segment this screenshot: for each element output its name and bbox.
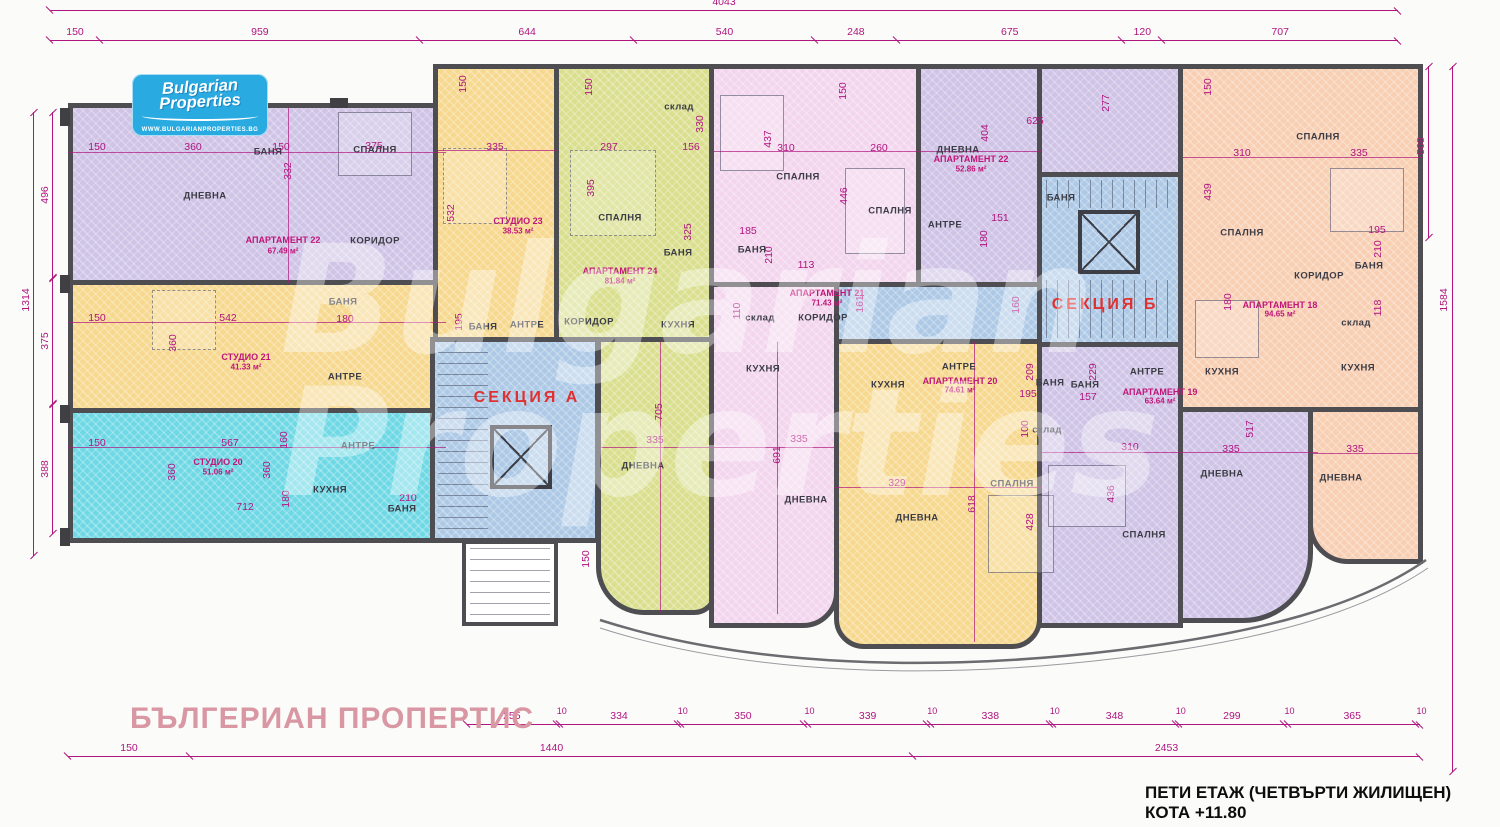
dim-segment: 540 bbox=[634, 24, 814, 41]
apartment-area: 41.33 м² bbox=[231, 363, 262, 372]
apartment-area: 67.49 м² bbox=[268, 247, 299, 256]
dim-label: 150 bbox=[68, 742, 190, 754]
dim-segment: 644 bbox=[420, 24, 635, 41]
room-label-dnevna: ДНЕВНА bbox=[622, 461, 665, 472]
dim-label: 150 bbox=[88, 312, 106, 324]
room-label-kuhnya: КУХНЯ bbox=[746, 364, 780, 375]
room-label-spalnya: СПАЛНЯ bbox=[1122, 530, 1165, 541]
elevator-shaft-a bbox=[490, 425, 552, 489]
room-label-spalnya: СПАЛНЯ bbox=[1296, 132, 1339, 143]
room-label-banya: БАНЯ bbox=[1355, 261, 1384, 272]
dim-label: 297 bbox=[600, 141, 618, 153]
dim-segment: 339 bbox=[808, 708, 927, 725]
bed bbox=[720, 95, 784, 171]
bed bbox=[988, 495, 1054, 573]
dim-label: 160 bbox=[278, 431, 290, 449]
room-label-kuhnya: КУХНЯ bbox=[871, 380, 905, 391]
dim-label: 100 bbox=[1019, 420, 1031, 438]
dim-label: 388 bbox=[39, 460, 51, 478]
dim-segment: 365 bbox=[1288, 708, 1416, 725]
apartment-area: 63.64 м² bbox=[1145, 397, 1176, 406]
room-label-koridor: КОРИДОР bbox=[1294, 271, 1344, 282]
dim-label: 625 bbox=[1026, 115, 1044, 127]
dim-line-left-496 bbox=[52, 112, 53, 278]
dim-label: 375 bbox=[39, 332, 51, 350]
dim-label: 160 bbox=[1010, 296, 1022, 314]
dim-label: 335 bbox=[486, 141, 504, 153]
room-label-dnevna: ДНЕВНА bbox=[1320, 473, 1363, 484]
apartment-area: 71.43 м² bbox=[812, 299, 843, 308]
dim-segment: 348 bbox=[1053, 708, 1175, 725]
dim-label: 335 bbox=[646, 434, 664, 446]
dim-segment: 334 bbox=[560, 708, 678, 725]
title-block: ПЕТИ ЕТАЖ (ЧЕТВЪРТИ ЖИЛИЩЕН) КОТА +11.80 bbox=[1145, 783, 1451, 823]
dim-label: 329 bbox=[888, 477, 906, 489]
dim-label: 334 bbox=[560, 710, 678, 722]
dim-label: 360 bbox=[167, 334, 179, 352]
dim-label: 248 bbox=[815, 26, 898, 38]
dim-segment: 959 bbox=[100, 24, 420, 41]
dim-label: 260 bbox=[870, 142, 888, 154]
dim-label: 1440 bbox=[190, 742, 913, 754]
dim-label: 118 bbox=[1372, 300, 1384, 317]
dim-label: 150 bbox=[272, 141, 290, 153]
dim-label: 310 bbox=[1233, 147, 1251, 159]
apartment-area: 51.06 м² bbox=[203, 468, 234, 477]
dim-label: 150 bbox=[457, 75, 469, 93]
dim-label: 277 bbox=[1100, 94, 1112, 112]
apartment-label: АПАРТАМЕНТ 19 bbox=[1123, 387, 1198, 397]
dimension-line bbox=[660, 342, 661, 612]
apartment-area: 52.86 м² bbox=[956, 165, 987, 174]
dim-label: 113 bbox=[798, 259, 815, 271]
logo-website: WWW.BULGARIANPROPERTIES.BG bbox=[132, 127, 268, 133]
dim-label: 210 bbox=[763, 246, 775, 264]
dimension-line bbox=[288, 108, 289, 283]
room-label-kuhnya: КУХНЯ bbox=[1205, 367, 1239, 378]
room-studio-21 bbox=[68, 280, 446, 413]
dim-label: 330 bbox=[694, 115, 706, 133]
room-label-banya: БАНЯ bbox=[329, 297, 358, 308]
elevator-shaft-b bbox=[1078, 210, 1140, 274]
floor-plan-page: { "logo": {"brand_line1":"Bulgarian","br… bbox=[0, 0, 1500, 827]
dim-label: 2453 bbox=[913, 742, 1420, 754]
room-label-banya: БАНЯ bbox=[469, 322, 498, 333]
dim-chain-bottom: 255 10 334 10 350 10 339 10 338 10 348 1… bbox=[467, 708, 1420, 725]
dim-label: 195 bbox=[1368, 224, 1386, 236]
room-label-kuhnya: КУХНЯ bbox=[1341, 363, 1375, 374]
dimension-line bbox=[68, 447, 446, 448]
dim-label: 299 bbox=[1179, 710, 1284, 722]
apartment-label: АПАРТАМЕНТ 18 bbox=[1243, 300, 1318, 310]
dim-line-right-508 bbox=[1428, 66, 1429, 238]
bed bbox=[152, 290, 216, 350]
dim-label: 365 bbox=[1288, 710, 1416, 722]
dim-label: 210 bbox=[1372, 240, 1384, 258]
room-label-dnevna: ДНЕВНА bbox=[785, 495, 828, 506]
apartment-label: СТУДИО 20 bbox=[193, 457, 242, 467]
dim-label: 446 bbox=[838, 187, 850, 205]
dim-label: 150 bbox=[583, 78, 595, 96]
dim-label: 395 bbox=[585, 179, 597, 197]
dim-segment: 150 bbox=[68, 740, 190, 757]
apartment-area: 74.61 м² bbox=[945, 386, 976, 395]
dim-segment: 120 bbox=[1122, 24, 1162, 41]
room-label-antre: АНТРЕ bbox=[328, 372, 362, 383]
dim-label: 157 bbox=[1079, 391, 1097, 403]
room-label-spalnya: СПАЛНЯ bbox=[776, 172, 819, 183]
dim-label: 618 bbox=[966, 495, 978, 513]
room-label-sklad: склад bbox=[664, 102, 694, 113]
elevation-title: КОТА +11.80 bbox=[1145, 803, 1451, 823]
room-label-spalnya: СПАЛНЯ bbox=[868, 206, 911, 217]
dim-label: 350 bbox=[681, 710, 804, 722]
dim-segment: 248 bbox=[815, 24, 898, 41]
apartment-area: 94.65 м² bbox=[1265, 310, 1296, 319]
room-label-antre: АНТРЕ bbox=[1130, 367, 1164, 378]
dim-segment: 2453 bbox=[913, 740, 1420, 757]
dimension-line bbox=[777, 342, 778, 614]
room-label-banya: БАНЯ bbox=[1036, 378, 1065, 389]
dim-label: 532 bbox=[445, 204, 457, 222]
dim-line-left-375 bbox=[52, 278, 53, 404]
wall-pillar bbox=[60, 528, 70, 546]
section-b-label: СЕКЦИЯ Б bbox=[1052, 296, 1159, 314]
dim-label: 10 bbox=[1416, 706, 1420, 716]
dim-label: 360 bbox=[184, 141, 202, 153]
dim-label: 150 bbox=[837, 82, 849, 100]
dim-label: 439 bbox=[1202, 183, 1214, 201]
room-label-antre: АНТРЕ bbox=[928, 220, 962, 231]
dim-label: 339 bbox=[808, 710, 927, 722]
dim-label: 691 bbox=[771, 446, 783, 464]
room-label-sklad: склад bbox=[745, 313, 775, 324]
room-label-sklad: склад bbox=[1032, 425, 1062, 436]
dim-label: 959 bbox=[100, 26, 420, 38]
dim-label: 150 bbox=[88, 437, 106, 449]
dim-segment: 350 bbox=[681, 708, 804, 725]
dim-label: 705 bbox=[653, 403, 665, 421]
dimension-line bbox=[1042, 452, 1318, 453]
dim-label: 209 bbox=[1024, 363, 1036, 381]
dimension-line bbox=[600, 447, 834, 448]
dim-label: 310 bbox=[777, 142, 795, 154]
dim-label: 195 bbox=[453, 313, 465, 331]
dim-label: 436 bbox=[1105, 485, 1117, 503]
dim-label: 360 bbox=[261, 461, 273, 479]
dim-segment: 707 bbox=[1162, 24, 1398, 41]
apartment-label: АПАРТАМЕНТ 24 bbox=[583, 266, 658, 276]
dim-label: 4043 bbox=[50, 0, 1398, 8]
dim-segment: 1440 bbox=[190, 740, 913, 757]
dim-label: 185 bbox=[739, 225, 757, 237]
dim-label: 338 bbox=[931, 710, 1050, 722]
room-label-koridor: КОРИДОР bbox=[798, 313, 848, 324]
dim-chain-top-total: 4043 bbox=[50, 0, 1398, 11]
apartment-label: СТУДИО 21 bbox=[221, 352, 270, 362]
room-label-koridor: КОРИДОР bbox=[564, 317, 614, 328]
dim-label: 707 bbox=[1162, 26, 1398, 38]
balcony-curve bbox=[420, 520, 1470, 700]
agency-watermark: БЪЛГЕРИАН ПРОПЕРТИС bbox=[130, 702, 534, 736]
wall-pillar bbox=[60, 275, 70, 293]
dim-label: 150 bbox=[580, 550, 592, 568]
room-apartment-18 bbox=[1178, 64, 1423, 412]
wall-pillar bbox=[60, 405, 70, 423]
room-label-kuhnya: КУХНЯ bbox=[313, 485, 347, 496]
dim-label: 161 bbox=[854, 295, 866, 313]
bed bbox=[1330, 168, 1404, 232]
dim-label: 335 bbox=[1350, 147, 1368, 159]
floor-title: ПЕТИ ЕТАЖ (ЧЕТВЪРТИ ЖИЛИЩЕН) bbox=[1145, 783, 1451, 803]
apartment-label: АПАРТАМЕНТ 20 bbox=[923, 376, 998, 386]
dim-label: 1584 bbox=[1438, 288, 1450, 311]
stair-treads-a bbox=[438, 352, 488, 530]
section-a-label: СЕКЦИЯ А bbox=[474, 389, 581, 407]
dim-segment: 675 bbox=[897, 24, 1122, 41]
dim-label: 1314 bbox=[20, 288, 32, 311]
room-label-dnevna: ДНЕВНА bbox=[1201, 469, 1244, 480]
room-label-banya: БАНЯ bbox=[388, 504, 417, 515]
dim-label: 567 bbox=[221, 437, 239, 449]
dim-label: 180 bbox=[978, 230, 990, 248]
dim-label: 644 bbox=[420, 26, 635, 38]
dim-label: 335 bbox=[1222, 443, 1240, 455]
dim-segment: 150 bbox=[50, 24, 100, 41]
dim-label: 180 bbox=[1222, 293, 1234, 311]
logo-swoosh bbox=[142, 111, 258, 121]
apartment-area: 38.53 м² bbox=[503, 227, 534, 236]
stair-treads-entry-a bbox=[470, 548, 550, 618]
dim-label: 542 bbox=[219, 312, 237, 324]
room-label-antre: АНТРЕ bbox=[341, 441, 375, 452]
dim-line-left-total bbox=[33, 112, 34, 556]
dim-label: 675 bbox=[897, 26, 1122, 38]
apartment-label: СТУДИО 23 bbox=[493, 216, 542, 226]
dim-chain-bottom-row2: 150 1440 2453 bbox=[68, 740, 1420, 757]
dim-label: 195 bbox=[1019, 388, 1037, 400]
room-label-banya: БАНЯ bbox=[664, 248, 693, 259]
dim-line-left-388 bbox=[52, 404, 53, 534]
dim-label: 360 bbox=[166, 463, 178, 481]
apartment-label: АПАРТАМЕНТ 22 bbox=[934, 154, 1009, 164]
dim-segment: 299 bbox=[1179, 708, 1284, 725]
wall-pillar bbox=[60, 108, 70, 126]
room-label-spalnya: СПАЛНЯ bbox=[598, 213, 641, 224]
room-label-antre: АНТРЕ bbox=[942, 362, 976, 373]
dim-label: 404 bbox=[979, 124, 991, 142]
dim-segment: 338 bbox=[931, 708, 1050, 725]
dim-label: 712 bbox=[236, 501, 254, 513]
dim-line-right-1584 bbox=[1452, 66, 1453, 772]
room-label-antre: АНТРЕ bbox=[510, 320, 544, 331]
dim-label: 325 bbox=[682, 223, 694, 241]
room-label-kuhnya: КУХНЯ bbox=[661, 320, 695, 331]
dim-label: 180 bbox=[336, 313, 354, 325]
room-section-b-bedroom bbox=[1037, 64, 1183, 177]
dim-label: 110 bbox=[731, 303, 743, 320]
dim-label: 375 bbox=[365, 140, 383, 152]
dim-segment: 4043 bbox=[50, 0, 1398, 11]
wall-pillar bbox=[330, 98, 348, 108]
room-label-dnevna: ДНЕВНА bbox=[896, 513, 939, 524]
dim-label: 229 bbox=[1087, 363, 1099, 381]
dimension-line bbox=[1183, 157, 1423, 158]
dim-label: 508 bbox=[1415, 137, 1427, 155]
room-studio-20 bbox=[68, 408, 446, 543]
dim-label: 348 bbox=[1053, 710, 1175, 722]
dim-label: 496 bbox=[39, 186, 51, 204]
dim-label: 335 bbox=[1346, 443, 1364, 455]
dim-label: 517 bbox=[1244, 420, 1256, 438]
dim-label: 150 bbox=[1202, 78, 1214, 96]
apartment-label: АПАРТАМЕНТ 22 bbox=[246, 235, 321, 245]
room-label-sklad: склад bbox=[1341, 318, 1371, 329]
dim-label: 310 bbox=[1121, 441, 1139, 453]
room-label-koridor: КОРИДОР bbox=[350, 236, 400, 247]
room-label-banya: БАНЯ bbox=[1047, 193, 1076, 204]
dimension-line bbox=[68, 322, 446, 323]
dim-chain-top: 150 959 644 540 248 675 120 707 bbox=[50, 24, 1398, 41]
dimension-line bbox=[1313, 453, 1418, 454]
dim-segment: 10 bbox=[1416, 708, 1420, 725]
dim-label: 335 bbox=[790, 433, 808, 445]
dim-label: 437 bbox=[762, 130, 774, 148]
bulgarian-properties-logo: Bulgarian Properties WWW.BULGARIANPROPER… bbox=[132, 74, 268, 136]
room-label-spalnya: СПАЛНЯ bbox=[990, 479, 1033, 490]
apartment-area: 81.84 м² bbox=[605, 277, 636, 286]
dim-label: 332 bbox=[282, 162, 294, 180]
dim-label: 428 bbox=[1024, 513, 1036, 531]
dim-label: 156 bbox=[682, 141, 700, 153]
dim-label: 150 bbox=[50, 26, 100, 38]
dim-label: 151 bbox=[991, 212, 1009, 224]
dim-label: 540 bbox=[634, 26, 814, 38]
room-apartment-22-mid bbox=[916, 64, 1042, 287]
room-label-spalnya: СПАЛНЯ bbox=[1220, 228, 1263, 239]
room-label-banya: БАНЯ bbox=[1071, 380, 1100, 391]
dim-label: 210 bbox=[399, 492, 417, 504]
dim-label: 180 bbox=[280, 490, 292, 508]
room-label-dnevna: ДНЕВНА bbox=[184, 191, 227, 202]
dim-label: 150 bbox=[88, 141, 106, 153]
